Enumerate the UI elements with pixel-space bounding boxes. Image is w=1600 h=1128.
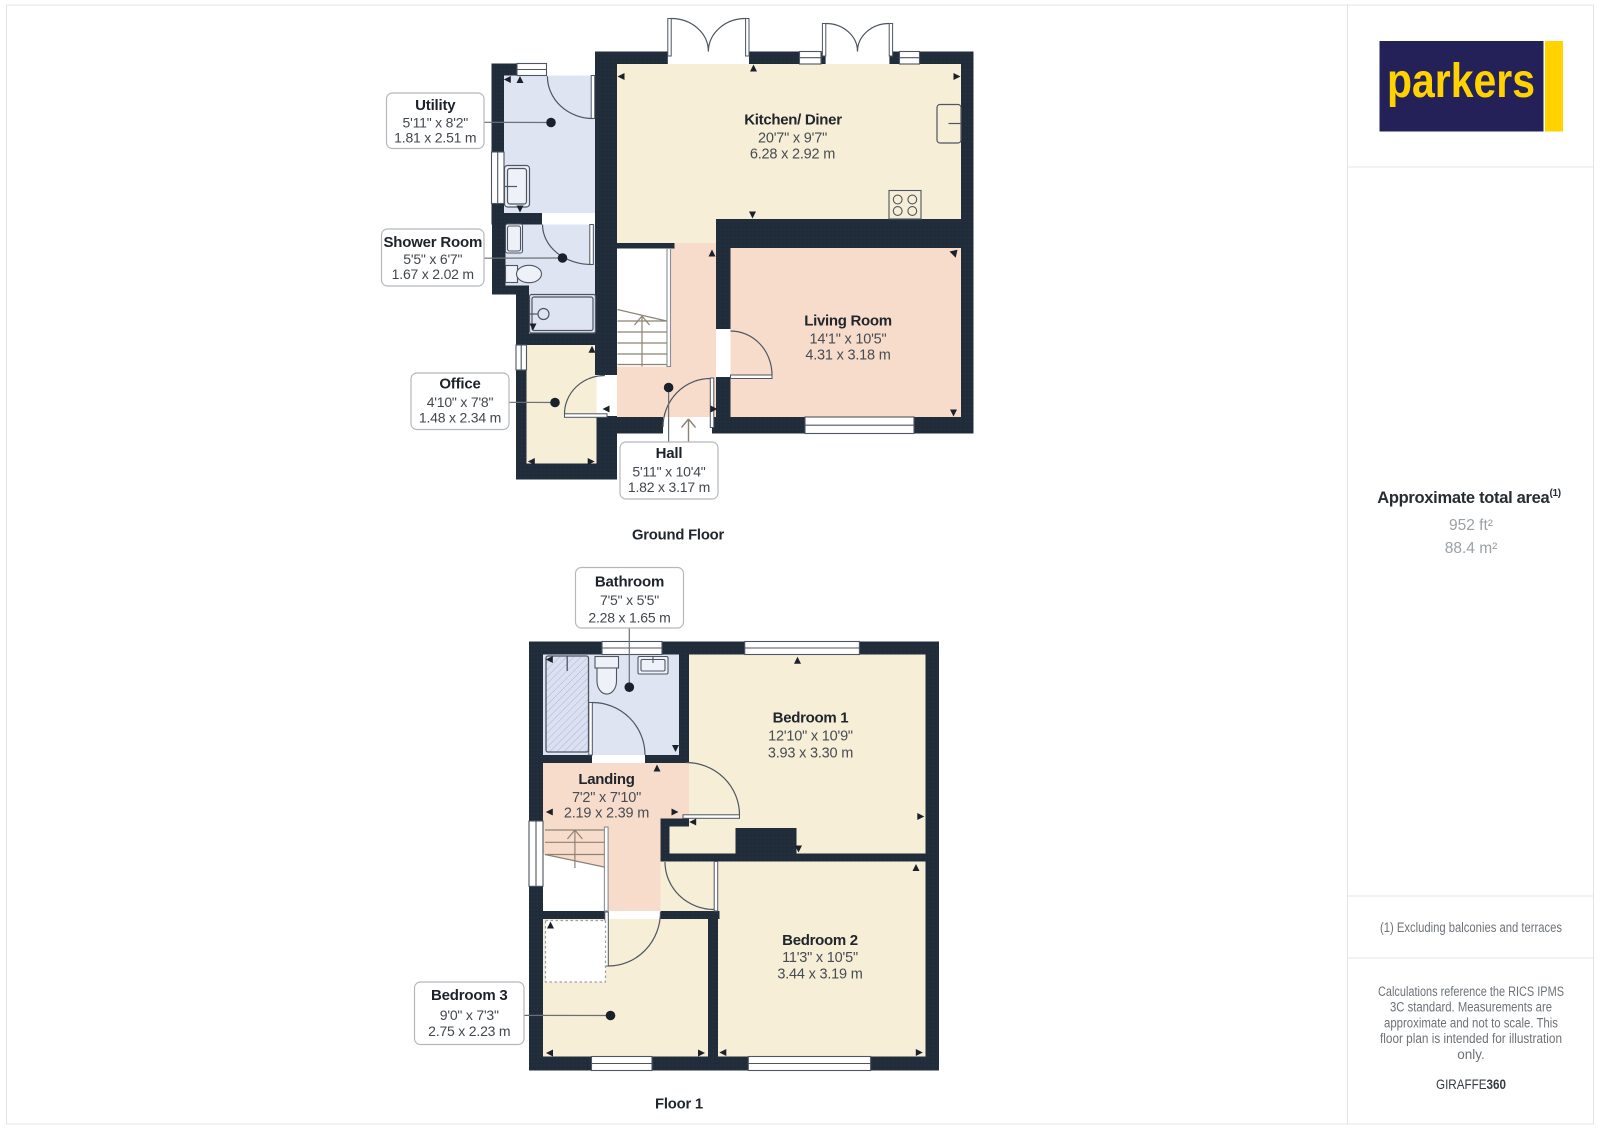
svg-text:1.48 x 2.34 m: 1.48 x 2.34 m (419, 410, 501, 426)
svg-text:14'1" x 10'5": 14'1" x 10'5" (810, 332, 887, 348)
svg-text:Bedroom 1: Bedroom 1 (773, 710, 849, 727)
svg-text:2.28 x 1.65 m: 2.28 x 1.65 m (588, 610, 670, 626)
svg-text:only.: only. (1457, 1047, 1485, 1062)
svg-text:4'10" x 7'8": 4'10" x 7'8" (427, 394, 494, 410)
svg-text:952 ft²: 952 ft² (1449, 517, 1493, 534)
svg-text:4.31 x 3.18 m: 4.31 x 3.18 m (805, 348, 890, 364)
svg-text:12'10" x 10'9": 12'10" x 10'9" (768, 729, 853, 745)
svg-text:5'5" x 6'7": 5'5" x 6'7" (403, 251, 462, 267)
svg-text:floor plan is intended for ill: floor plan is intended for illustration (1380, 1031, 1562, 1046)
svg-text:Floor 1: Floor 1 (655, 1097, 703, 1113)
svg-text:Landing: Landing (578, 771, 634, 788)
svg-text:7'2" x 7'10": 7'2" x 7'10" (572, 790, 641, 806)
svg-text:Approximate total area(1): Approximate total area(1) (1377, 488, 1561, 507)
svg-text:5'11" x 10'4": 5'11" x 10'4" (632, 464, 705, 480)
svg-text:Bedroom 3: Bedroom 3 (431, 987, 508, 1004)
svg-text:Kitchen/ Diner: Kitchen/ Diner (744, 112, 842, 129)
svg-text:6.28 x 2.92 m: 6.28 x 2.92 m (750, 147, 835, 163)
svg-text:3.44 x 3.19 m: 3.44 x 3.19 m (777, 967, 862, 983)
svg-text:3C standard. Measurements are: 3C standard. Measurements are (1390, 1000, 1552, 1015)
svg-text:1.67 x 2.02 m: 1.67 x 2.02 m (392, 266, 474, 282)
svg-text:Calculations reference the RIC: Calculations reference the RICS IPMS (1378, 984, 1564, 999)
svg-text:2.19 x 2.39 m: 2.19 x 2.39 m (564, 806, 649, 822)
svg-text:(1) Excluding balconies and te: (1) Excluding balconies and terraces (1380, 920, 1562, 935)
svg-text:Office: Office (439, 376, 480, 393)
svg-text:1.82 x 3.17 m: 1.82 x 3.17 m (628, 479, 710, 495)
svg-text:Shower Room: Shower Room (383, 234, 482, 251)
svg-text:Utility: Utility (415, 97, 456, 114)
svg-text:9'0" x 7'3": 9'0" x 7'3" (440, 1007, 499, 1023)
svg-text:7'5" x 5'5": 7'5" x 5'5" (600, 592, 659, 608)
svg-text:approximate and not to scale.: approximate and not to scale. This (1384, 1015, 1558, 1030)
svg-text:1.81 x 2.51 m: 1.81 x 2.51 m (394, 130, 476, 146)
svg-text:11'3" x 10'5": 11'3" x 10'5" (782, 950, 858, 966)
svg-text:88.4 m²: 88.4 m² (1445, 540, 1498, 557)
svg-text:Bedroom 2: Bedroom 2 (782, 932, 858, 949)
svg-text:Living Room: Living Room (804, 313, 892, 330)
svg-text:2.75 x 2.23 m: 2.75 x 2.23 m (428, 1023, 510, 1039)
svg-text:Bathroom: Bathroom (595, 574, 664, 591)
svg-text:20'7" x 9'7": 20'7" x 9'7" (758, 131, 827, 147)
svg-text:3.93 x 3.30 m: 3.93 x 3.30 m (768, 746, 853, 762)
svg-text:Ground Floor: Ground Floor (632, 528, 725, 544)
svg-text:parkers: parkers (1387, 55, 1535, 108)
svg-text:5'11" x 8'2": 5'11" x 8'2" (403, 115, 469, 131)
svg-text:GIRAFFE360: GIRAFFE360 (1436, 1076, 1506, 1092)
svg-text:Hall: Hall (656, 445, 683, 462)
